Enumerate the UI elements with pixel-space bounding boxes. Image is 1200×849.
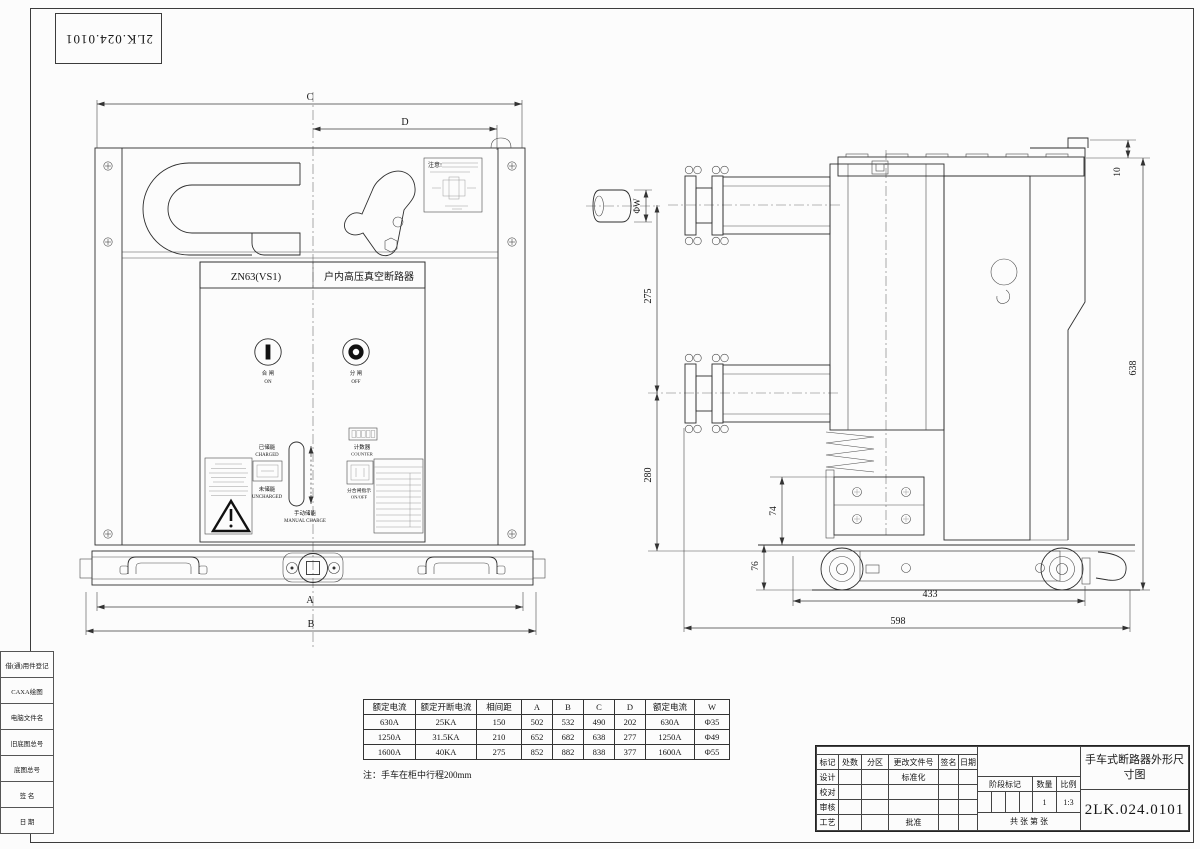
hook-lever xyxy=(344,171,415,256)
close-label-cn: 合 闸 xyxy=(262,369,274,377)
value-quantity: 1 xyxy=(1032,791,1057,813)
bellows xyxy=(826,432,874,472)
uncharged-en: UNCHARGED xyxy=(252,495,283,500)
contact-tip-detail: ΦW xyxy=(586,190,660,222)
dim-phi-w: ΦW xyxy=(632,198,642,214)
drawing-title: 手车式断路器外形尺寸图 xyxy=(1080,746,1189,790)
operation-counter: 计数器 COUNTER xyxy=(349,428,377,457)
manual-charge-slot: 手动储能 MANUAL CHARGE xyxy=(284,442,326,524)
label-quantity: 数量 xyxy=(1032,776,1057,792)
mechanism-housing xyxy=(944,138,1088,540)
manual-cn: 手动储能 xyxy=(294,509,317,517)
label-review: 审核 xyxy=(816,799,839,815)
top-rail xyxy=(838,154,1084,176)
table-row: 630A25KA 150502 532490 202 xyxy=(364,715,646,730)
side-dims-right: 638 10 xyxy=(1086,140,1150,590)
dim-B: B xyxy=(308,619,315,630)
dim-638: 638 xyxy=(1128,361,1139,376)
table-row: 1250A31.5KA 210652 682638 277 xyxy=(364,730,646,745)
position-indicator-window: 分合闸指示 ON/OFF xyxy=(347,461,373,500)
dim-A: A xyxy=(306,595,314,606)
hook-icon xyxy=(997,290,1010,304)
table-row: 630AΦ35 xyxy=(646,715,730,730)
counter-en: COUNTER xyxy=(351,452,374,457)
open-label-cn: 分 闸 xyxy=(350,369,362,377)
ratings-table: 额定电流 额定开断电流 相间距 A B C D 630A25KA 150502 … xyxy=(363,699,646,760)
dim-C: C xyxy=(307,92,314,103)
charged-cn: 已储能 xyxy=(259,443,276,451)
col-A: A xyxy=(522,700,553,715)
col-rated-current: 额定电流 xyxy=(364,700,416,715)
label-sheets: 共 张 第 张 xyxy=(977,812,1081,831)
front-dimensions-top: C D xyxy=(97,92,522,150)
side-dims-bottom: 433 598 xyxy=(684,428,1130,632)
col-rated-current-w: 额定电流 xyxy=(646,700,695,715)
value-scale: 1:3 xyxy=(1056,791,1081,813)
notice-plate: 注意! xyxy=(424,158,482,212)
col-C: C xyxy=(584,700,615,715)
lower-contact-arm xyxy=(648,354,840,433)
dim-74: 74 xyxy=(769,506,779,516)
indicator-cn: 分合闸指示 xyxy=(347,487,371,494)
uncharged-cn: 未储能 xyxy=(259,485,276,493)
front-dimensions-bottom: A B xyxy=(86,592,536,635)
dim-275: 275 xyxy=(643,289,654,304)
label-signature: 签名 xyxy=(938,754,959,770)
guide-hook xyxy=(1096,552,1126,580)
side-truck xyxy=(758,545,1140,590)
lifting-lug xyxy=(491,138,511,148)
dim-10: 10 xyxy=(1113,167,1123,177)
dim-598: 598 xyxy=(891,616,906,627)
side-view: ΦW xyxy=(586,138,1150,632)
table-row: 1600AΦ55 xyxy=(646,745,730,760)
col-W: W xyxy=(695,700,730,715)
col-D: D xyxy=(615,700,646,715)
col-breaking-current: 额定开断电流 xyxy=(416,700,477,715)
upper-contact-arm xyxy=(668,166,840,245)
counter-cn: 计数器 xyxy=(354,443,371,451)
label-stage-mark: 阶段标记 xyxy=(977,776,1033,792)
open-button-indicator: 分 闸 OFF xyxy=(343,339,369,385)
table-row: 1250AΦ49 xyxy=(646,730,730,745)
title-block: 标记 处数 分区 更改文件号 签名 日期 设计 标准化 校对 审核 工艺 批准 … xyxy=(815,745,1190,832)
lower-bracket xyxy=(826,470,924,538)
manual-en: MANUAL CHARGE xyxy=(284,519,326,524)
label-check: 校对 xyxy=(816,784,839,800)
charge-indicator: 已储能 CHARGED 未储能 UNCHARGED xyxy=(252,443,283,500)
truck-base xyxy=(80,551,545,585)
label-date: 日期 xyxy=(958,754,978,770)
w-table: 额定电流 W 630AΦ35 1250AΦ49 1600AΦ55 xyxy=(645,699,730,760)
close-label-en: ON xyxy=(264,380,272,385)
label-design: 设计 xyxy=(816,769,839,785)
dim-76: 76 xyxy=(751,561,761,571)
ratings-nameplate xyxy=(374,459,423,533)
warning-plate xyxy=(205,458,252,534)
notice-title: 注意! xyxy=(428,161,442,169)
travel-note: 注：手车在柜中行程200mm xyxy=(363,768,472,781)
product-name-label: 户内高压真空断路器 xyxy=(324,270,414,283)
label-standardization: 标准化 xyxy=(888,769,939,785)
label-mark: 标记 xyxy=(816,754,839,770)
model-label: ZN63(VS1) xyxy=(231,272,282,283)
col-phase-spacing: 相间距 xyxy=(477,700,522,715)
indicator-en: ON/OFF xyxy=(351,495,368,500)
dim-433: 433 xyxy=(923,589,938,600)
col-B: B xyxy=(553,700,584,715)
drawing-sheet: 2LK.024.0101 借(通)用件登记 CAXA绘图 电脑文件名 旧底图总号… xyxy=(0,0,1200,849)
front-view: 注意! C D xyxy=(80,92,545,648)
label-scale: 比例 xyxy=(1056,776,1081,792)
label-count: 处数 xyxy=(838,754,862,770)
side-dims-left: 275 280 xyxy=(643,205,860,551)
label-zone: 分区 xyxy=(861,754,889,770)
charged-en: CHARGED xyxy=(255,453,279,458)
open-label-en: OFF xyxy=(351,380,360,385)
panel-screws xyxy=(104,162,516,538)
drawing-number: 2LK.024.0101 xyxy=(1080,789,1189,831)
close-button-indicator: 合 闸 ON xyxy=(255,339,281,385)
table-row: 1600A40KA 275852 882838 377 xyxy=(364,745,646,760)
label-change-doc: 更改文件号 xyxy=(888,754,939,770)
dim-D: D xyxy=(401,117,408,128)
label-process: 工艺 xyxy=(816,814,839,831)
label-approve: 批准 xyxy=(888,814,939,831)
dim-280: 280 xyxy=(643,468,654,483)
interlock-handle xyxy=(143,163,300,255)
